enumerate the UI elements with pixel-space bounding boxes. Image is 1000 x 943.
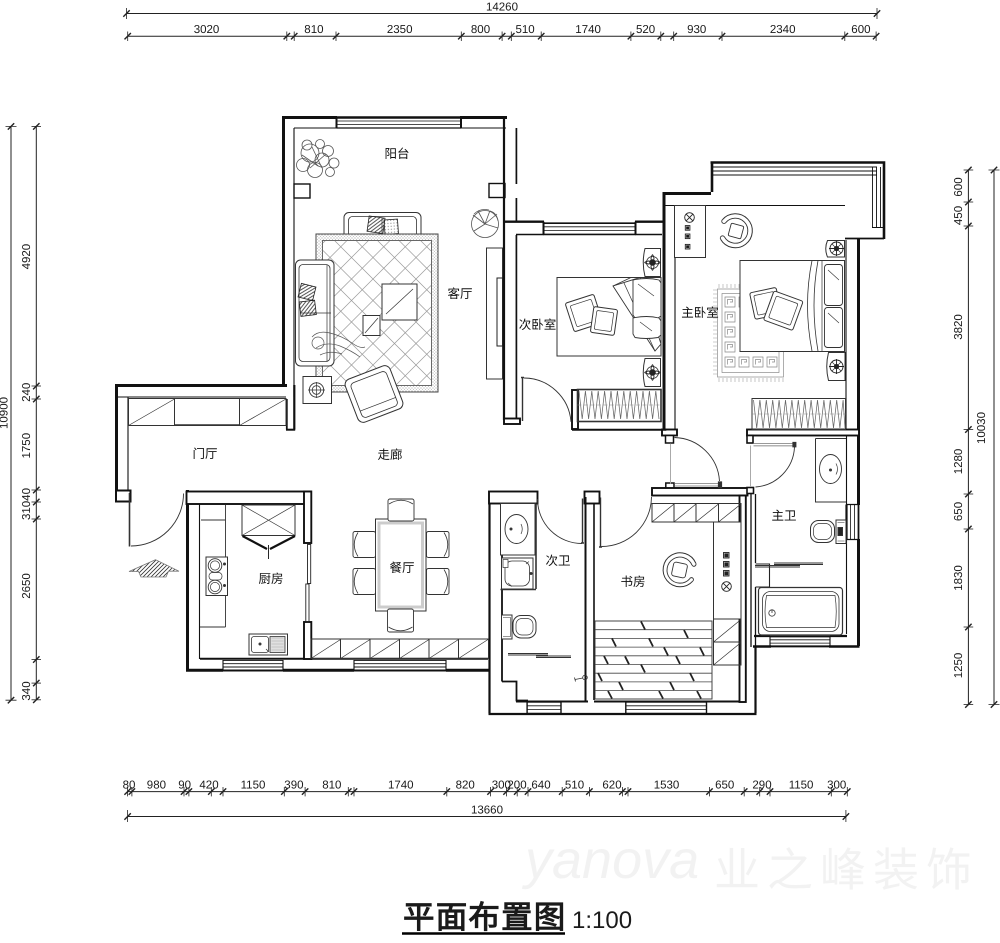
svg-text:2340: 2340 — [770, 24, 796, 36]
svg-text:2650: 2650 — [21, 573, 33, 599]
svg-text:340: 340 — [21, 681, 33, 700]
svg-text:走廊: 走廊 — [377, 448, 402, 462]
svg-text:门厅: 门厅 — [192, 447, 217, 461]
svg-text:650: 650 — [953, 502, 965, 521]
svg-text:90: 90 — [178, 780, 191, 792]
svg-text:1280: 1280 — [953, 449, 965, 475]
svg-text:810: 810 — [322, 780, 341, 792]
svg-text:14260: 14260 — [486, 2, 518, 14]
svg-text:1530: 1530 — [654, 780, 680, 792]
svg-text:930: 930 — [687, 24, 706, 36]
svg-text:640: 640 — [531, 780, 550, 792]
svg-text:2350: 2350 — [387, 24, 413, 36]
svg-text:510: 510 — [565, 780, 584, 792]
svg-text:1740: 1740 — [388, 780, 414, 792]
svg-text:3020: 3020 — [194, 24, 220, 36]
svg-text:520: 520 — [636, 24, 655, 36]
svg-text:1830: 1830 — [953, 565, 965, 591]
svg-text:3820: 3820 — [953, 314, 965, 340]
svg-text:主卫: 主卫 — [771, 509, 796, 523]
svg-text:1750: 1750 — [21, 433, 33, 459]
svg-text:13660: 13660 — [471, 805, 503, 817]
svg-text:厨房: 厨房 — [258, 572, 283, 586]
svg-text:餐厅: 餐厅 — [389, 561, 414, 575]
svg-text:810: 810 — [304, 24, 323, 36]
svg-text:450: 450 — [953, 206, 965, 225]
svg-text:1150: 1150 — [241, 780, 266, 792]
svg-text:次卫: 次卫 — [545, 554, 570, 568]
svg-text:业之峰装饰: 业之峰装饰 — [714, 844, 979, 896]
svg-text:510: 510 — [516, 24, 535, 36]
svg-text:书房: 书房 — [620, 575, 645, 589]
svg-text:1:100: 1:100 — [572, 907, 632, 934]
svg-text:80: 80 — [123, 780, 136, 792]
svg-text:1250: 1250 — [953, 653, 965, 679]
svg-text:次卧室: 次卧室 — [519, 318, 557, 332]
svg-text:600: 600 — [953, 177, 965, 196]
svg-text:300: 300 — [827, 780, 846, 792]
svg-text:10900: 10900 — [0, 397, 11, 429]
svg-text:820: 820 — [456, 780, 475, 792]
svg-text:1740: 1740 — [575, 24, 601, 36]
svg-text:240: 240 — [21, 383, 33, 402]
svg-text:4920: 4920 — [21, 244, 33, 270]
svg-text:650: 650 — [715, 780, 734, 792]
svg-text:980: 980 — [147, 780, 166, 792]
svg-text:290: 290 — [752, 780, 771, 792]
svg-text:620: 620 — [602, 780, 621, 792]
svg-text:平面布置图: 平面布置图 — [403, 899, 567, 935]
svg-text:31040: 31040 — [21, 488, 33, 520]
svg-text:200: 200 — [507, 780, 526, 792]
svg-text:阳台: 阳台 — [384, 147, 409, 161]
svg-text:主卧室: 主卧室 — [681, 306, 719, 320]
svg-text:420: 420 — [199, 780, 218, 792]
svg-text:800: 800 — [471, 24, 490, 36]
svg-text:1150: 1150 — [789, 780, 814, 792]
svg-text:10030: 10030 — [976, 412, 988, 444]
svg-text:yanova: yanova — [521, 830, 699, 890]
svg-text:600: 600 — [851, 24, 870, 36]
svg-text:客厅: 客厅 — [447, 287, 472, 301]
svg-text:390: 390 — [284, 780, 303, 792]
